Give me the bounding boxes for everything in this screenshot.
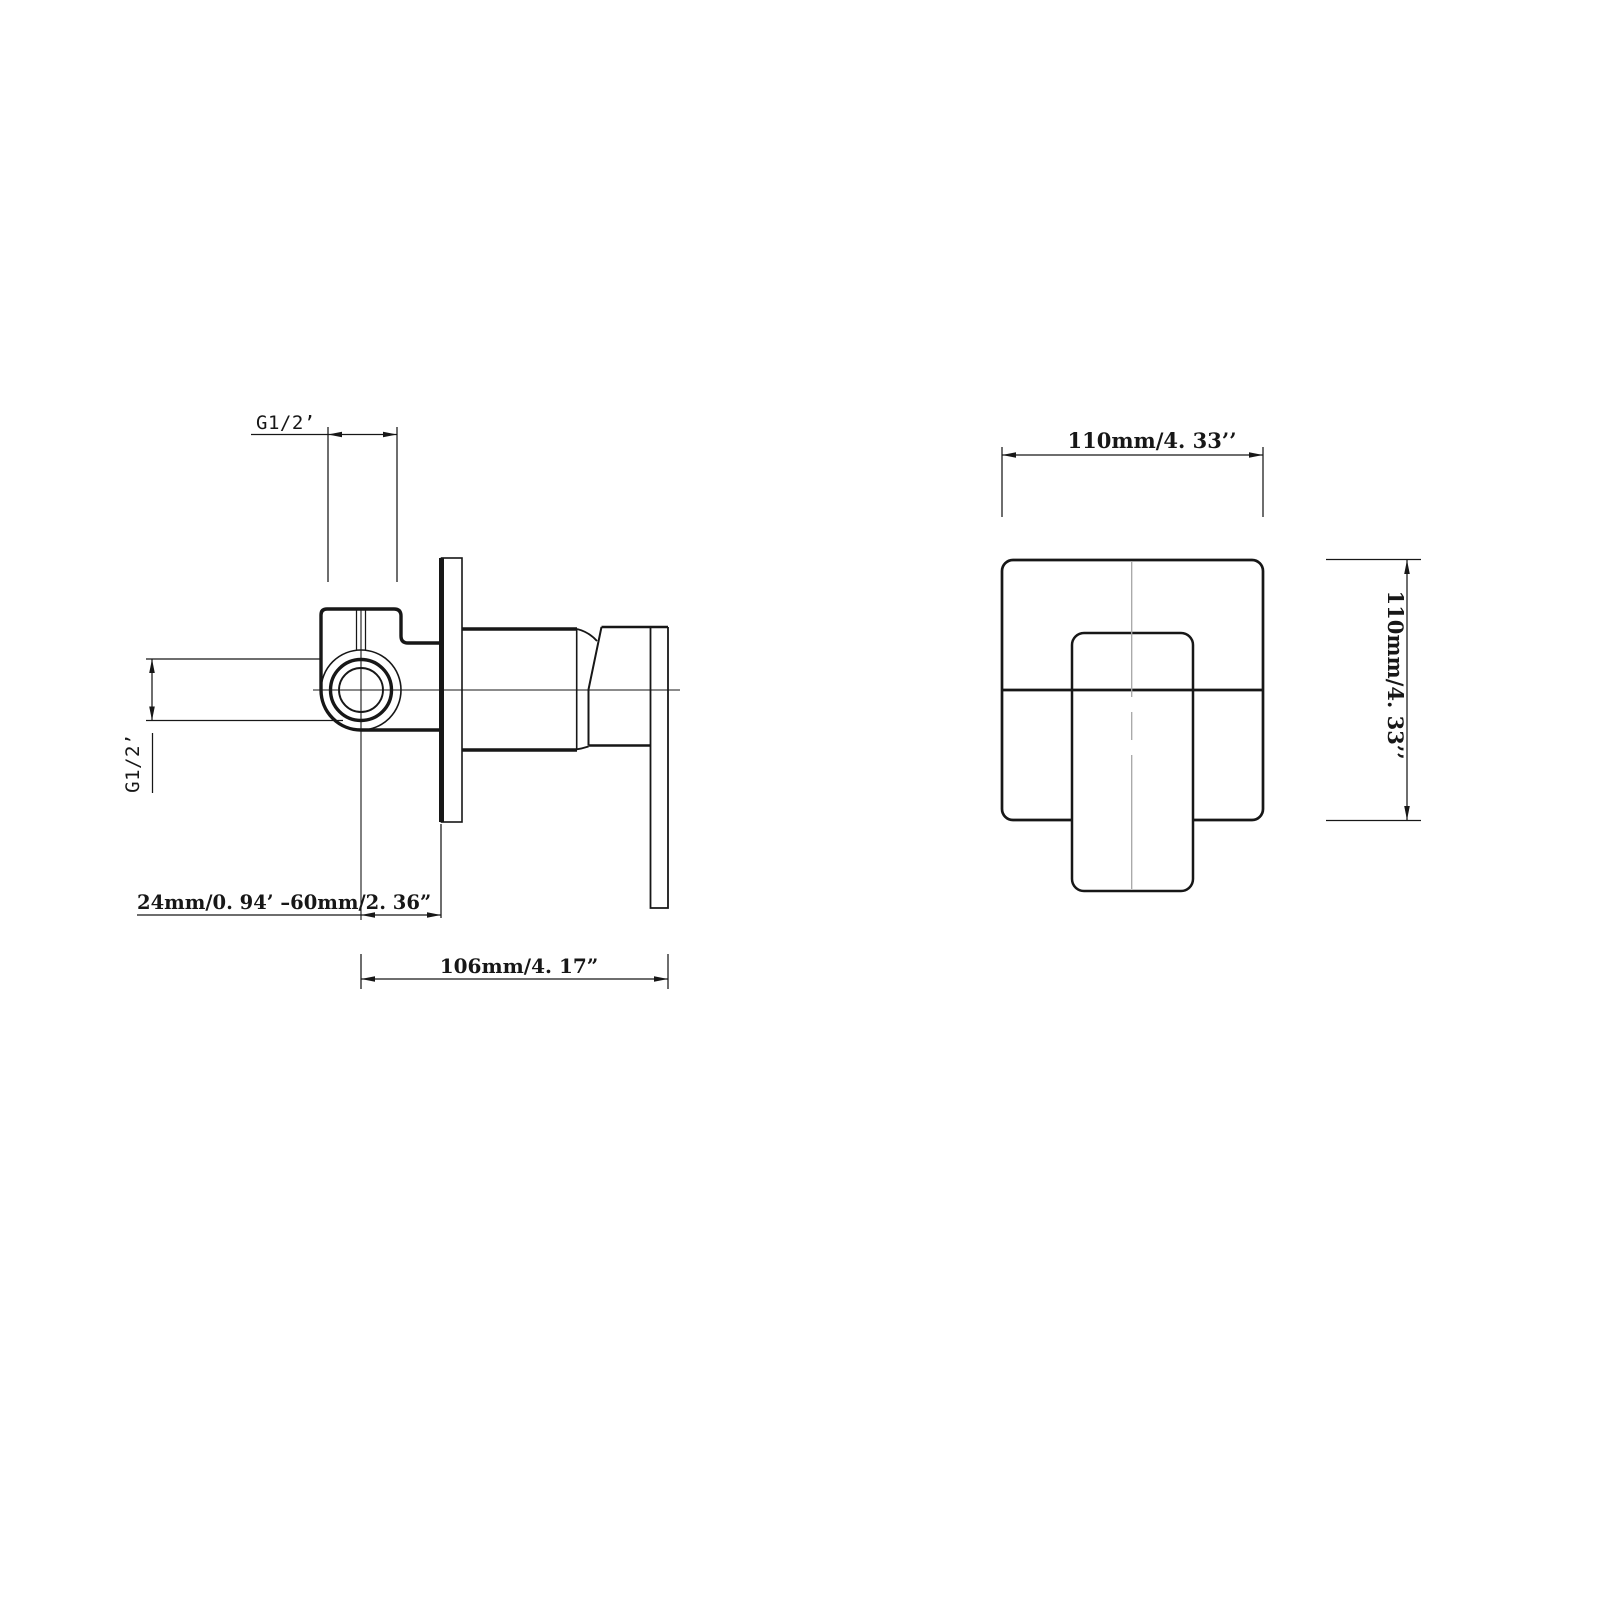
hub-bottom-fillet	[573, 747, 589, 751]
hub-slant-edge	[589, 627, 602, 746]
dim-side-port: G1/2’	[122, 659, 343, 793]
side-view: G1/2’ G1/2’ 24mm/0. 94’ –60mm/2. 36” 106…	[122, 412, 680, 989]
dim-overall-depth: 106mm/4. 17”	[361, 954, 668, 989]
hub-top-fillet	[577, 629, 597, 641]
install-depth-label: 24mm/0. 94’ –60mm/2. 36”	[137, 891, 431, 914]
front-view: 110mm/4. 33’’ 110mm/4. 33’’	[1002, 428, 1421, 891]
top-port-label: G1/2’	[256, 412, 316, 434]
lever-handle	[651, 627, 669, 908]
front-handle	[1072, 633, 1193, 891]
dim-plate-width: 110mm/4. 33’’	[1002, 428, 1263, 517]
overall-depth-label: 106mm/4. 17”	[440, 954, 599, 978]
technical-drawing-sheet: G1/2’ G1/2’ 24mm/0. 94’ –60mm/2. 36” 106…	[0, 0, 1600, 1600]
plate-height-label: 110mm/4. 33’’	[1383, 590, 1408, 759]
dim-top-port: G1/2’	[251, 412, 397, 582]
mixer-valve-drawing: G1/2’ G1/2’ 24mm/0. 94’ –60mm/2. 36” 106…	[0, 0, 1600, 1600]
side-port-label: G1/2’	[122, 733, 144, 793]
plate-width-label: 110mm/4. 33’’	[1067, 428, 1236, 453]
dim-plate-height: 110mm/4. 33’’	[1326, 560, 1421, 821]
dim-install-depth: 24mm/0. 94’ –60mm/2. 36”	[137, 824, 441, 918]
